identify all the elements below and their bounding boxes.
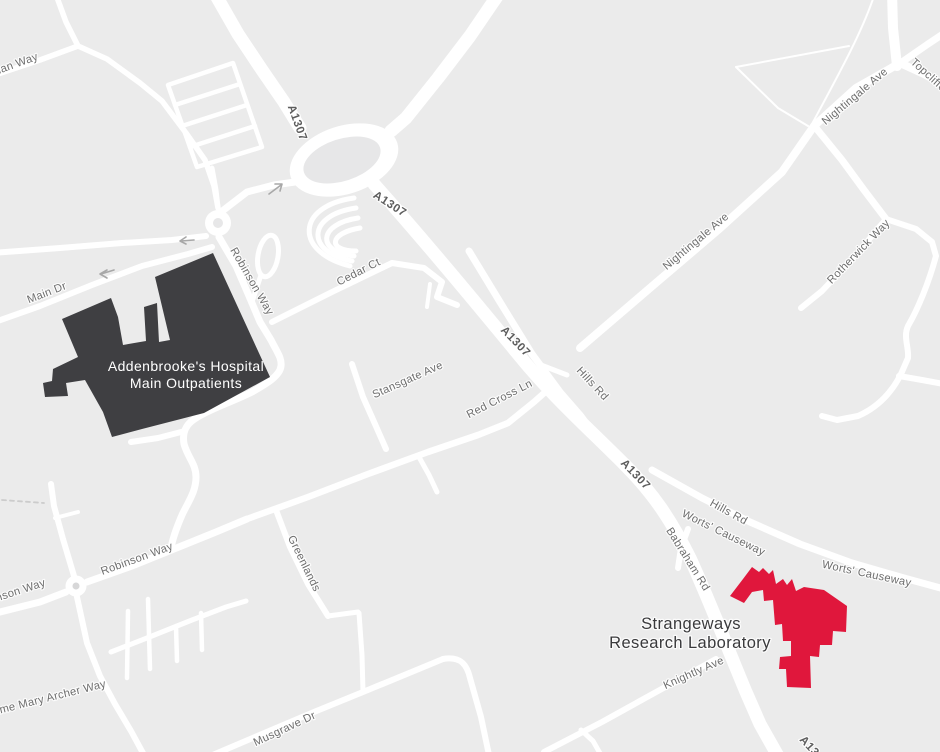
road-comb-tooth-2 xyxy=(148,599,150,669)
road-comb-tooth-4 xyxy=(201,613,202,650)
mini-roundabout-island xyxy=(73,583,80,590)
strangeways-label-line1: Strangeways xyxy=(641,615,741,633)
road-nightingale-north xyxy=(892,0,897,66)
roundabout-robinson-island xyxy=(213,218,223,228)
hospital-label-line1: Addenbrooke's Hospital xyxy=(108,358,264,374)
map-canvas[interactable]: Addenbrooke's Hospital Main Outpatients … xyxy=(0,0,940,752)
road-comb-tooth-3 xyxy=(176,626,177,661)
hospital-label-line2: Main Outpatients xyxy=(130,375,242,391)
strangeways-label-line2: Research Laboratory xyxy=(609,634,771,652)
road-comb-tooth-1 xyxy=(127,611,128,678)
